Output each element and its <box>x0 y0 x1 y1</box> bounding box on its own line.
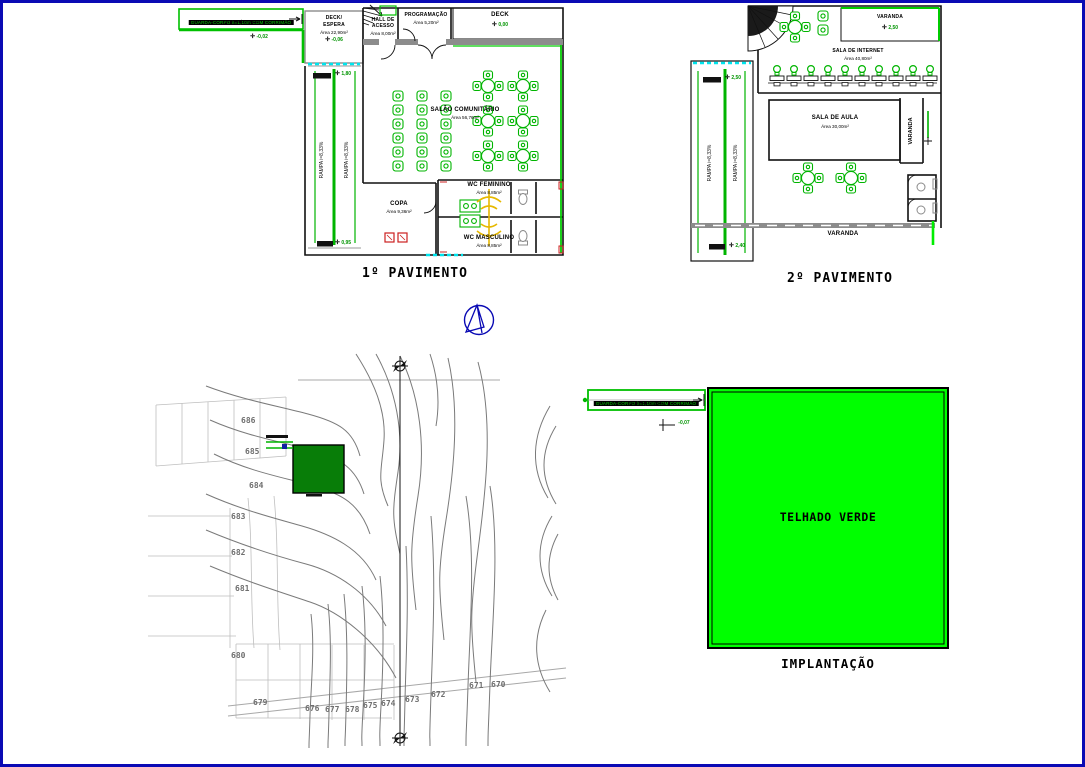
room-area: Área 8,85m² <box>476 190 501 195</box>
level-value: -0,07 <box>678 420 689 426</box>
contour-label: 678 <box>345 705 359 714</box>
level-marker: ✛ -0,06 <box>325 37 343 44</box>
contour-label: 670 <box>491 680 505 689</box>
level-marker: ✛ 0,00 <box>492 22 508 29</box>
room-area: Área 5,20m² <box>413 20 438 25</box>
north-arrow-icon <box>458 299 502 343</box>
ramp-slope-label: RAMPA i=8,33% <box>628 401 664 406</box>
contour-label: 681 <box>235 584 249 593</box>
room-label: PROGRAMAÇÃO <box>404 13 447 19</box>
room-area: Área 8,85m² <box>476 243 501 248</box>
contour-label: 686 <box>241 416 255 425</box>
contour-label: 675 <box>363 701 377 710</box>
salao-chair-columns <box>393 91 451 171</box>
level-marker: ✛ 0,95 <box>335 240 351 247</box>
level-marker-icon: ✛ <box>729 243 734 249</box>
implantacao-linework <box>581 383 961 678</box>
ramp-label-vertical: RAMPA i=8,33% <box>319 141 325 178</box>
room-area: Área 56,76m² <box>451 115 479 120</box>
site-plan: 686 685 684 683 682 681 680 679 676 677 … <box>148 348 568 753</box>
ramp-label-vertical: RAMPA i=8,33% <box>344 141 350 178</box>
internal-ramp: RAMPA i=8,33% RAMPA i=8,33% <box>691 61 753 261</box>
ramp-label-vertical: RAMPA i=8,33% <box>707 144 713 181</box>
room-area: Área 8,00m² <box>370 31 395 36</box>
contour-label: 672 <box>431 690 445 699</box>
level-marker-lines <box>659 419 675 431</box>
level-marker-icon: ✛ <box>325 37 330 43</box>
contour-label: 677 <box>325 705 339 714</box>
survey-marker-icon <box>392 358 408 374</box>
level-value: 2,50 <box>731 75 741 81</box>
room-label: SALA DE INTERNET <box>832 49 883 55</box>
level-value: 2,50 <box>888 25 898 31</box>
contour-label: 671 <box>469 681 483 690</box>
computer-row <box>768 66 937 86</box>
level-marker-icon: ✛ <box>335 71 340 77</box>
level-marker-icon: ✛ <box>335 240 340 246</box>
wc-stalls <box>908 175 937 214</box>
room-label: SALA DE AULA <box>812 115 859 122</box>
building-footprint <box>266 435 344 497</box>
implantacao-plan: GUARDA-CORPO h=1,10m COM CORRIMÃO RAMPA … <box>581 383 961 678</box>
parcel-grid <box>148 397 394 720</box>
contour-label: 679 <box>253 698 267 707</box>
second-floor-title: 2º PAVIMENTO <box>787 272 893 286</box>
room-area: Área 30,00m² <box>821 124 849 129</box>
level-value: 0,00 <box>498 22 508 28</box>
varanda-right-label: VARANDA <box>908 117 914 144</box>
level-marker: ✛ -0,02 <box>250 34 268 41</box>
level-marker: ✛ 2,50 <box>725 75 741 82</box>
level-value: 1,80 <box>341 71 351 77</box>
room-label: ESPERA <box>323 23 345 29</box>
varanda-bottom-wall <box>691 221 935 245</box>
room-label: COPA <box>390 201 408 208</box>
level-marker-icon: ✛ <box>492 22 497 28</box>
contour-label: 684 <box>249 481 263 490</box>
contour-label: 673 <box>405 695 419 704</box>
first-floor-title: 1º PAVIMENTO <box>362 267 468 281</box>
varanda-right-level <box>924 111 932 145</box>
level-marker-icon: ✛ <box>882 25 887 31</box>
door-gap <box>418 39 446 45</box>
second-floor-linework: RAMPA i=8,33% RAMPA i=8,33% <box>675 3 995 295</box>
room-label: DECK/ <box>326 16 343 22</box>
room-label: DECK <box>491 12 509 19</box>
contour-label: 676 <box>305 704 319 713</box>
level-value: 2,40 <box>735 243 745 249</box>
room-label: VARANDA <box>828 231 859 238</box>
room-label: VARANDA <box>877 15 903 21</box>
room-label: WC FEMININO <box>467 182 510 189</box>
room-area: Área 40,80m² <box>844 56 872 61</box>
contour-label: 680 <box>231 651 245 660</box>
roads <box>228 380 566 716</box>
contour-label: 682 <box>231 548 245 557</box>
contour-label: 674 <box>381 699 395 708</box>
cyan-thresholds <box>308 64 463 255</box>
ramp-slope-label: RAMPA i=8,33% <box>223 19 259 24</box>
level-marker-icon: ✛ <box>725 75 730 81</box>
contour-label: 685 <box>245 447 259 456</box>
ramp-label-vertical: RAMPA i=8,33% <box>733 144 739 181</box>
level-value: 0,95 <box>341 240 351 246</box>
room-label: SALÃO COMUNITÁRIO <box>430 107 499 114</box>
level-value: -0,02 <box>257 34 268 40</box>
internal-ramp: RAMPA i=8,33% RAMPA i=8,33% <box>308 66 361 248</box>
room-label: ACESSO <box>372 24 394 30</box>
level-marker: ✛ 2,50 <box>882 25 898 32</box>
implantacao-title: IMPLANTAÇÃO <box>781 657 875 671</box>
contour-label: 683 <box>231 512 245 521</box>
level-marker: ✛ 2,40 <box>729 243 745 250</box>
varanda-tables <box>793 163 866 193</box>
cad-drawing-canvas: RAMPA i=8,33% RAMPA i=8,33% <box>0 0 1085 767</box>
room-area: Área 22,90m² <box>320 30 348 35</box>
green-roof-label: TELHADO VERDE <box>780 511 877 524</box>
site-plan-linework <box>148 348 568 753</box>
second-floor-plan: RAMPA i=8,33% RAMPA i=8,33% <box>675 3 995 295</box>
survey-marker-icon <box>392 730 408 746</box>
level-value: -0,06 <box>332 37 343 43</box>
first-floor-plan: RAMPA i=8,33% RAMPA i=8,33% <box>171 3 571 293</box>
first-floor-linework: RAMPA i=8,33% RAMPA i=8,33% <box>171 3 571 293</box>
copa-sink <box>385 233 407 242</box>
room-area: Área 9,36m² <box>386 209 411 214</box>
door-gap <box>379 39 395 45</box>
salao-table-grid <box>473 71 538 171</box>
level-marker: -0,07 <box>678 421 689 427</box>
level-marker-icon: ✛ <box>250 34 255 40</box>
room-label: WC MASCULINO <box>464 235 514 242</box>
level-marker: ✛ 1,80 <box>335 71 351 78</box>
